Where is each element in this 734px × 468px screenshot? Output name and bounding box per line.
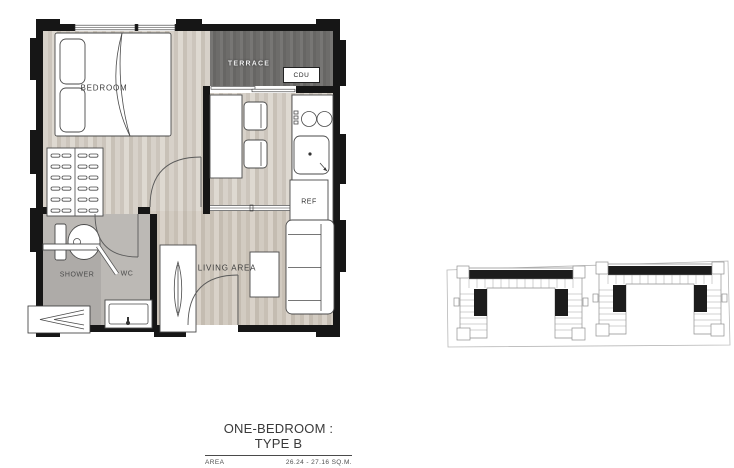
toilet-icon bbox=[55, 224, 100, 260]
coffee-table-icon bbox=[250, 252, 279, 297]
bedroom-window bbox=[75, 24, 175, 31]
sink-icon bbox=[294, 136, 329, 174]
tv-cabinet-icon bbox=[160, 245, 196, 332]
ac-ledge-icon bbox=[28, 306, 90, 333]
door-arc-bedroom bbox=[150, 157, 201, 207]
dining-chair-icon bbox=[244, 102, 267, 168]
cdu-unit: CDU bbox=[283, 67, 320, 83]
terrace-sliding-door-icon bbox=[210, 86, 296, 93]
title-block: ONE-BEDROOM : TYPE B AREA 26.24 - 27.16 … bbox=[205, 421, 352, 466]
floor-plan-page: BEDROOM TERRACE CDU REF SHOWER WC LIVING… bbox=[0, 0, 734, 468]
wardrobe-icon bbox=[47, 148, 103, 216]
area-value: 26.24 - 27.16 SQ.M. bbox=[286, 459, 352, 466]
shower-label: SHOWER bbox=[60, 272, 95, 279]
bedroom-label: BEDROOM bbox=[81, 84, 128, 93]
sofa-icon bbox=[286, 220, 334, 314]
area-label: AREA bbox=[205, 459, 224, 466]
cdu-label: CDU bbox=[294, 72, 310, 79]
terrace-label: TERRACE bbox=[228, 61, 270, 68]
dining-table-icon bbox=[210, 95, 242, 178]
site-key-plan bbox=[443, 252, 734, 366]
refrigerator-label: REF bbox=[301, 199, 317, 206]
page-title: ONE-BEDROOM : TYPE B bbox=[205, 421, 352, 456]
unit-floor-plan: BEDROOM TERRACE CDU REF SHOWER WC LIVING… bbox=[36, 24, 340, 332]
wc-label: WC bbox=[121, 271, 134, 278]
vanity-sink-icon bbox=[105, 300, 152, 328]
living-area-label: LIVING AREA bbox=[198, 264, 257, 273]
